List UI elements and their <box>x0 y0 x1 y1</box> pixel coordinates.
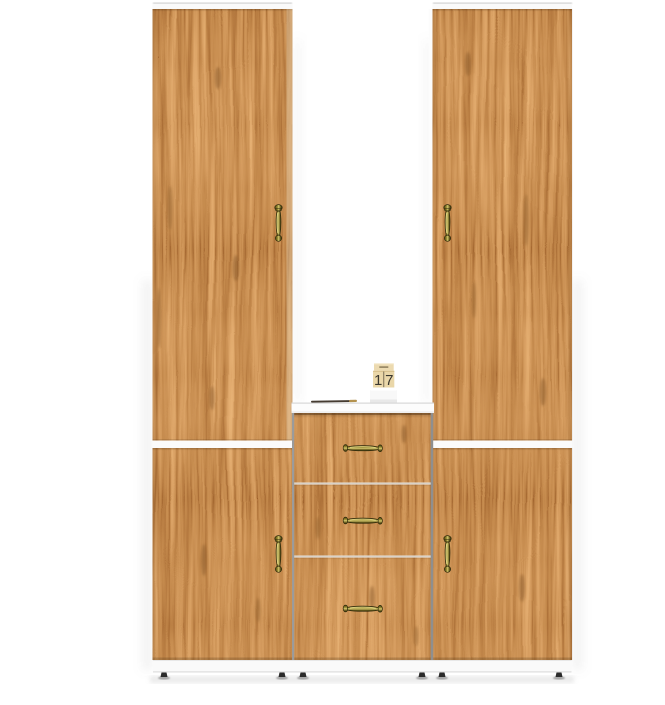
svg-text:7: 7 <box>385 372 393 389</box>
svg-text:1: 1 <box>374 372 382 389</box>
